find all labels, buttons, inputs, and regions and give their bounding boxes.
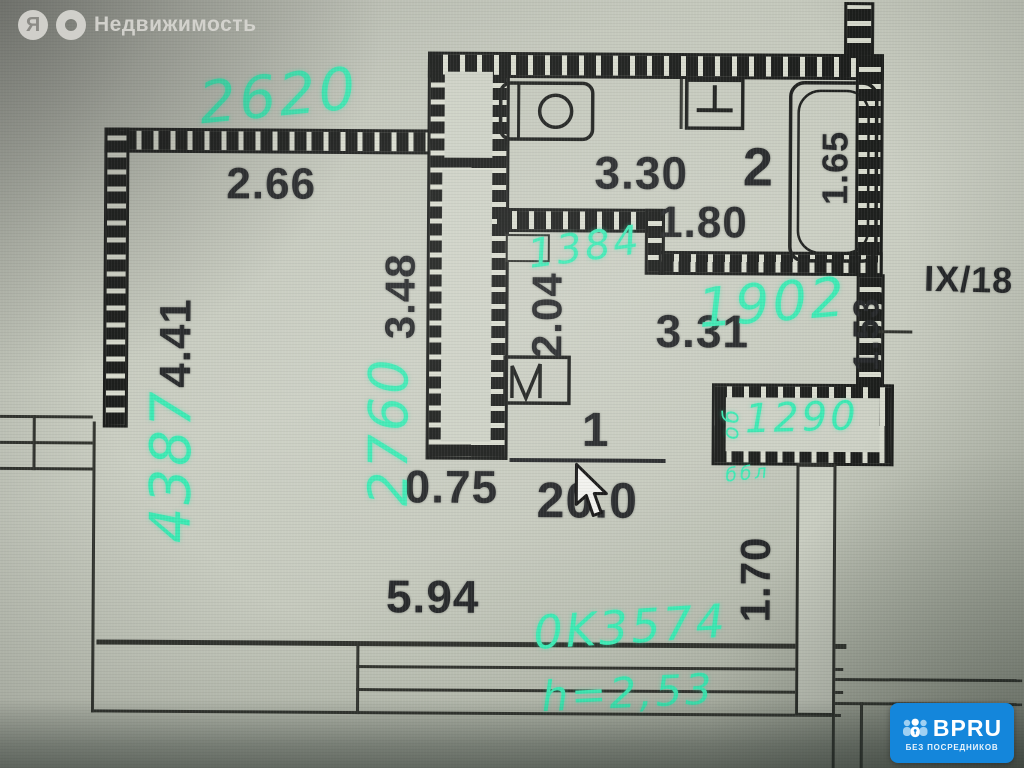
stove-icon (502, 354, 572, 406)
dim-partition-height: 3.48 (376, 253, 425, 339)
wall-bath-top (428, 51, 884, 80)
stair-line-3 (0, 467, 92, 471)
dim-right-depth: 1.70 (732, 536, 781, 622)
shaft-void-top (444, 72, 493, 158)
dim-kitchen-depth: 2.04 (523, 272, 572, 358)
balcony-left-line (91, 421, 96, 712)
stair-line-vert (32, 415, 35, 470)
neighbor-balcony-vert-1 (860, 702, 863, 768)
stair-line-2 (0, 441, 93, 445)
note-top-mm: 2620 (196, 54, 362, 137)
note-mid-mm: 2760 (357, 356, 421, 506)
dim-niche-width: 1.53 (845, 297, 887, 371)
dim-bottom-width: 5.94 (386, 569, 480, 624)
floor-plan-photo: 2.66 4.41 3.48 3.30 2 1.80 1.65 2.04 3.3… (0, 0, 1024, 768)
realty-ring-icon (56, 10, 86, 40)
balcony-front-line (91, 709, 841, 717)
note-closet-tag2: ббл (724, 460, 771, 486)
wall-strip-below-closet (795, 464, 837, 716)
balcony-divider (356, 644, 359, 714)
note-ceiling-height: h=2,53 (540, 664, 715, 721)
bath-room-number: 2 (743, 136, 774, 198)
wall-top-stub (844, 2, 874, 58)
floor-note: IX/18 (924, 258, 1014, 302)
yandex-realty-watermark: Я Недвижимость (18, 10, 256, 40)
stair-line-1 (0, 415, 93, 419)
people-icon (902, 718, 929, 738)
mouse-cursor (573, 462, 617, 520)
wall-toilet-divider (680, 79, 683, 129)
note-left-mm: 4387 (139, 388, 205, 543)
shaft-void-bottom (441, 170, 493, 442)
toilet-icon (684, 77, 746, 133)
yandex-logo-icon: Я (18, 10, 48, 40)
floor-plan: 2.66 4.41 3.48 3.30 2 1.80 1.65 2.04 3.3… (0, 0, 1024, 768)
watermark-label: Недвижимость (94, 13, 256, 37)
neighbor-balcony-line-1 (832, 678, 1022, 682)
dim-room-top-width: 2.66 (226, 159, 316, 210)
note-closet-tag: об (719, 407, 744, 440)
wall-bottom-window (96, 639, 846, 649)
note-hall-mm: 1902 (695, 265, 849, 340)
note-window-mm: 0K3574 (532, 594, 730, 660)
note-closet-mm: 1290 (744, 393, 859, 442)
bpru-badge: BPRU БЕЗ ПОСРЕДНИКОВ (890, 703, 1014, 763)
dim-tub-length: 1.65 (814, 131, 856, 205)
dim-bath-width: 1.80 (658, 198, 748, 249)
neighbor-balcony-vert-2 (832, 714, 835, 768)
badge-name: BPRU (933, 715, 1002, 742)
wall-room-top (104, 128, 440, 155)
sink-icon (497, 80, 597, 145)
badge-tagline: БЕЗ ПОСРЕДНИКОВ (906, 743, 999, 752)
dim-room-left-height: 4.41 (151, 298, 202, 388)
room-number: 1 (582, 403, 610, 458)
wall-room-left (103, 128, 130, 428)
bath-area: 3.30 (594, 146, 688, 201)
